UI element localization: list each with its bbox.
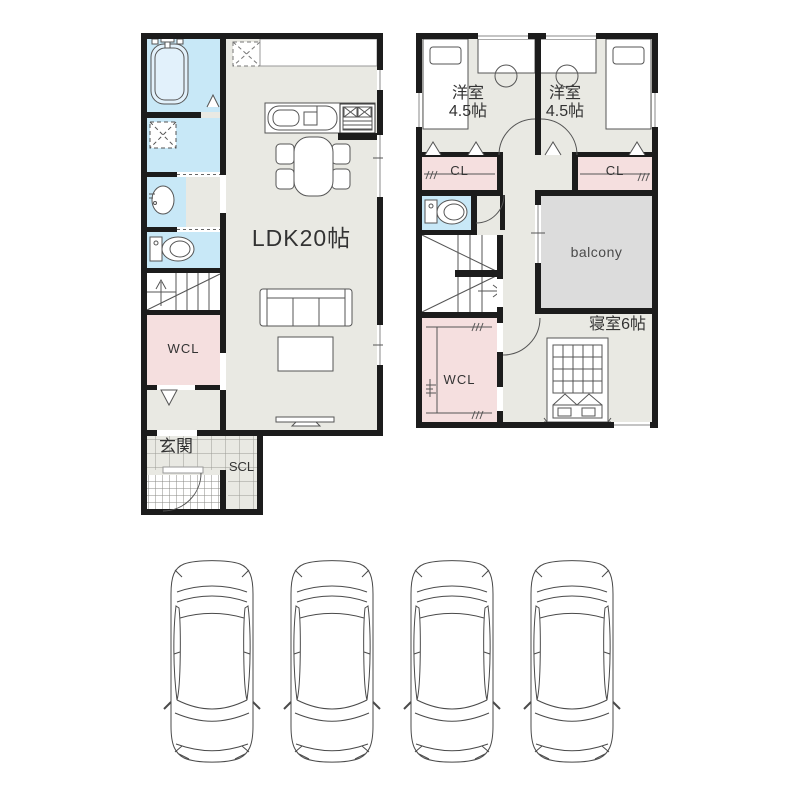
- cupboard-counter: [260, 39, 377, 66]
- room1-label: 洋室 4.5帖: [422, 85, 514, 122]
- bedroom-label: 寝室6帖: [541, 316, 646, 334]
- stove-icon: [340, 104, 375, 133]
- entrance-label: 玄関: [159, 437, 193, 457]
- toilet-icon-1f: [150, 237, 194, 261]
- floorplan-page: LDK20帖 WCL 玄関 SCL: [0, 0, 800, 800]
- bed-icon-right: [606, 39, 651, 129]
- table-icon: [278, 337, 333, 371]
- car-icon: [163, 558, 261, 764]
- bathtub-icon: [151, 38, 188, 104]
- balcony-label: balcony: [541, 244, 652, 260]
- sofa-icon: [260, 289, 352, 326]
- room1-size: 4.5帖: [422, 103, 514, 121]
- double-bed-icon: [544, 338, 611, 422]
- car-icon: [403, 558, 501, 764]
- wcl-2f-label: WCL: [422, 373, 497, 388]
- room2-size: 4.5帖: [519, 103, 611, 121]
- car-icon: [283, 558, 381, 764]
- scl-tiles: [228, 470, 257, 509]
- floorplan-1f: LDK20帖 WCL 玄関 SCL: [141, 33, 383, 515]
- ldk-label: LDK20帖: [226, 225, 377, 251]
- scl-label: SCL: [226, 460, 257, 475]
- room2-label: 洋室 4.5帖: [519, 85, 611, 122]
- cl-right-label: CL: [578, 164, 652, 179]
- car-icon: [523, 558, 621, 764]
- wcl-1f-label: WCL: [147, 342, 220, 357]
- room2-name: 洋室: [519, 85, 611, 103]
- toilet-icon-2f: [425, 200, 467, 224]
- fridge-space-icon: [233, 42, 260, 66]
- entrance-door: [163, 467, 203, 473]
- washer-space-icon: [150, 122, 176, 148]
- floorplan-2f: 洋室 4.5帖 洋室 4.5帖 CL CL balcony 寝室6帖 WCL: [416, 33, 658, 428]
- room-wcl-2f: [422, 318, 497, 422]
- cl-left-label: CL: [422, 164, 497, 179]
- room1-name: 洋室: [422, 85, 514, 103]
